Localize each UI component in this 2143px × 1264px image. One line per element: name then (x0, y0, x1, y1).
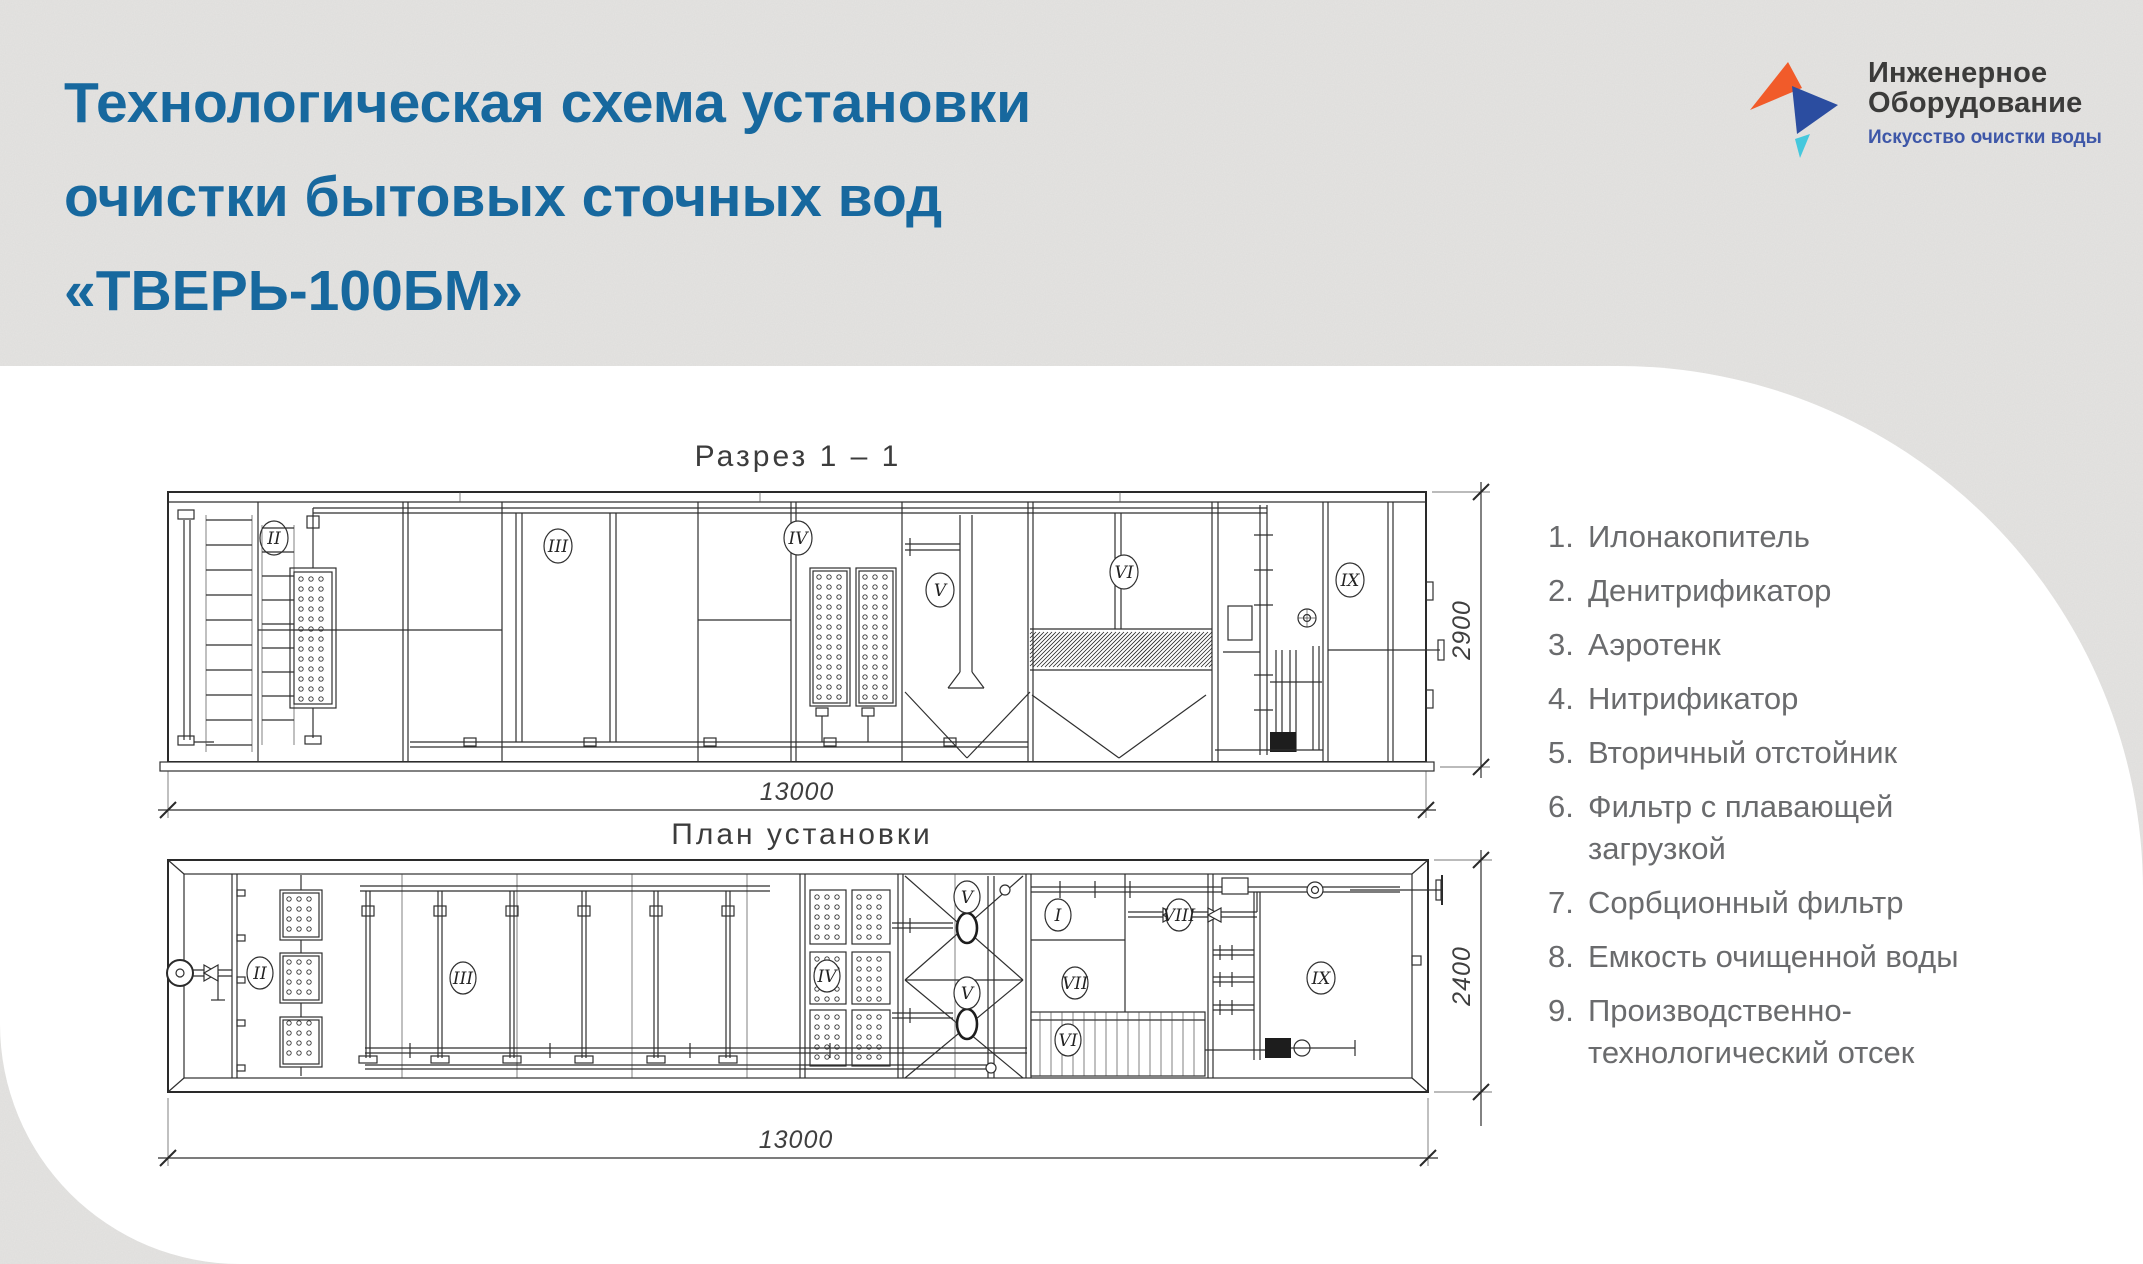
svg-text:III: III (452, 969, 473, 989)
technical-drawings: Разрез 1 – 1 (110, 420, 1510, 1200)
plan-view-drawing: План установки II (158, 818, 1492, 1166)
section-view-drawing: Разрез 1 – 1 (158, 440, 1490, 818)
legend-item-2: 2.Денитрификатор (1548, 570, 1988, 612)
svg-text:IV: IV (817, 967, 839, 987)
section-tank-base (160, 762, 1434, 771)
plan-dim-height-value: 2400 (1448, 946, 1476, 1007)
logo-name-line2: Оборудование (1868, 88, 2102, 118)
svg-text:V: V (934, 581, 948, 601)
legend-item-3: 3.Аэротенк (1548, 624, 1988, 666)
section-dim-width-value: 13000 (760, 778, 835, 806)
svg-text:VI: VI (1115, 563, 1134, 583)
page-title: Технологическая схема установки очистки … (64, 56, 1031, 338)
svg-text:II: II (266, 529, 281, 549)
svg-text:V: V (961, 984, 975, 1004)
section-dim-height-value: 2900 (1448, 600, 1476, 661)
section-dim-width: 13000 (158, 771, 1436, 818)
legend-item-5: 5.Вторичный отстойник (1548, 732, 1988, 774)
legend-item-1: 1.Илонакопитель (1548, 516, 1988, 558)
logo-arrow-icon (1748, 58, 1860, 162)
title-line-2: очистки бытовых сточных вод (64, 150, 1031, 244)
plan-view-title: План установки (671, 818, 932, 851)
title-line-3: «ТВЕРЬ-100БМ» (64, 244, 1031, 338)
company-logo: Инженерное Оборудование Искусство очистк… (1748, 58, 2102, 162)
legend-item-6: 6.Фильтр с плавающей загрузкой (1548, 786, 1988, 870)
logo-name-line1: Инженерное (1868, 58, 2102, 88)
legend-item-7: 7.Сорбционный фильтр (1548, 882, 1988, 924)
svg-text:IV: IV (788, 529, 810, 549)
section-view-title: Разрез 1 – 1 (695, 440, 902, 473)
svg-text:VII: VII (1062, 974, 1088, 994)
logo-text: Инженерное Оборудование Искусство очистк… (1868, 58, 2102, 162)
svg-text:IX: IX (1311, 969, 1332, 989)
legend: 1.Илонакопитель 2.Денитрификатор 3.Аэрот… (1548, 516, 1988, 1086)
logo-tagline: Искусство очистки воды (1868, 127, 2102, 149)
plan-dim-width: 13000 (158, 1098, 1438, 1166)
svg-text:II: II (252, 964, 267, 984)
legend-item-4: 4.Нитрификатор (1548, 678, 1988, 720)
svg-text:V: V (961, 888, 975, 908)
svg-text:VIII: VIII (1163, 906, 1196, 926)
svg-text:I: I (1054, 906, 1062, 926)
section-right-fittings (1426, 582, 1444, 708)
legend-item-8: 8.Емкость очищенной воды (1548, 936, 1988, 978)
title-line-1: Технологическая схема установки (64, 56, 1031, 150)
svg-text:IX: IX (1340, 571, 1361, 591)
section-dim-height: 2900 (1432, 482, 1490, 778)
svg-text:III: III (547, 537, 568, 557)
svg-text:VI: VI (1059, 1031, 1078, 1051)
legend-item-9: 9.Производственно-технологический отсек (1548, 990, 1988, 1074)
plan-dim-width-value: 13000 (759, 1126, 834, 1154)
